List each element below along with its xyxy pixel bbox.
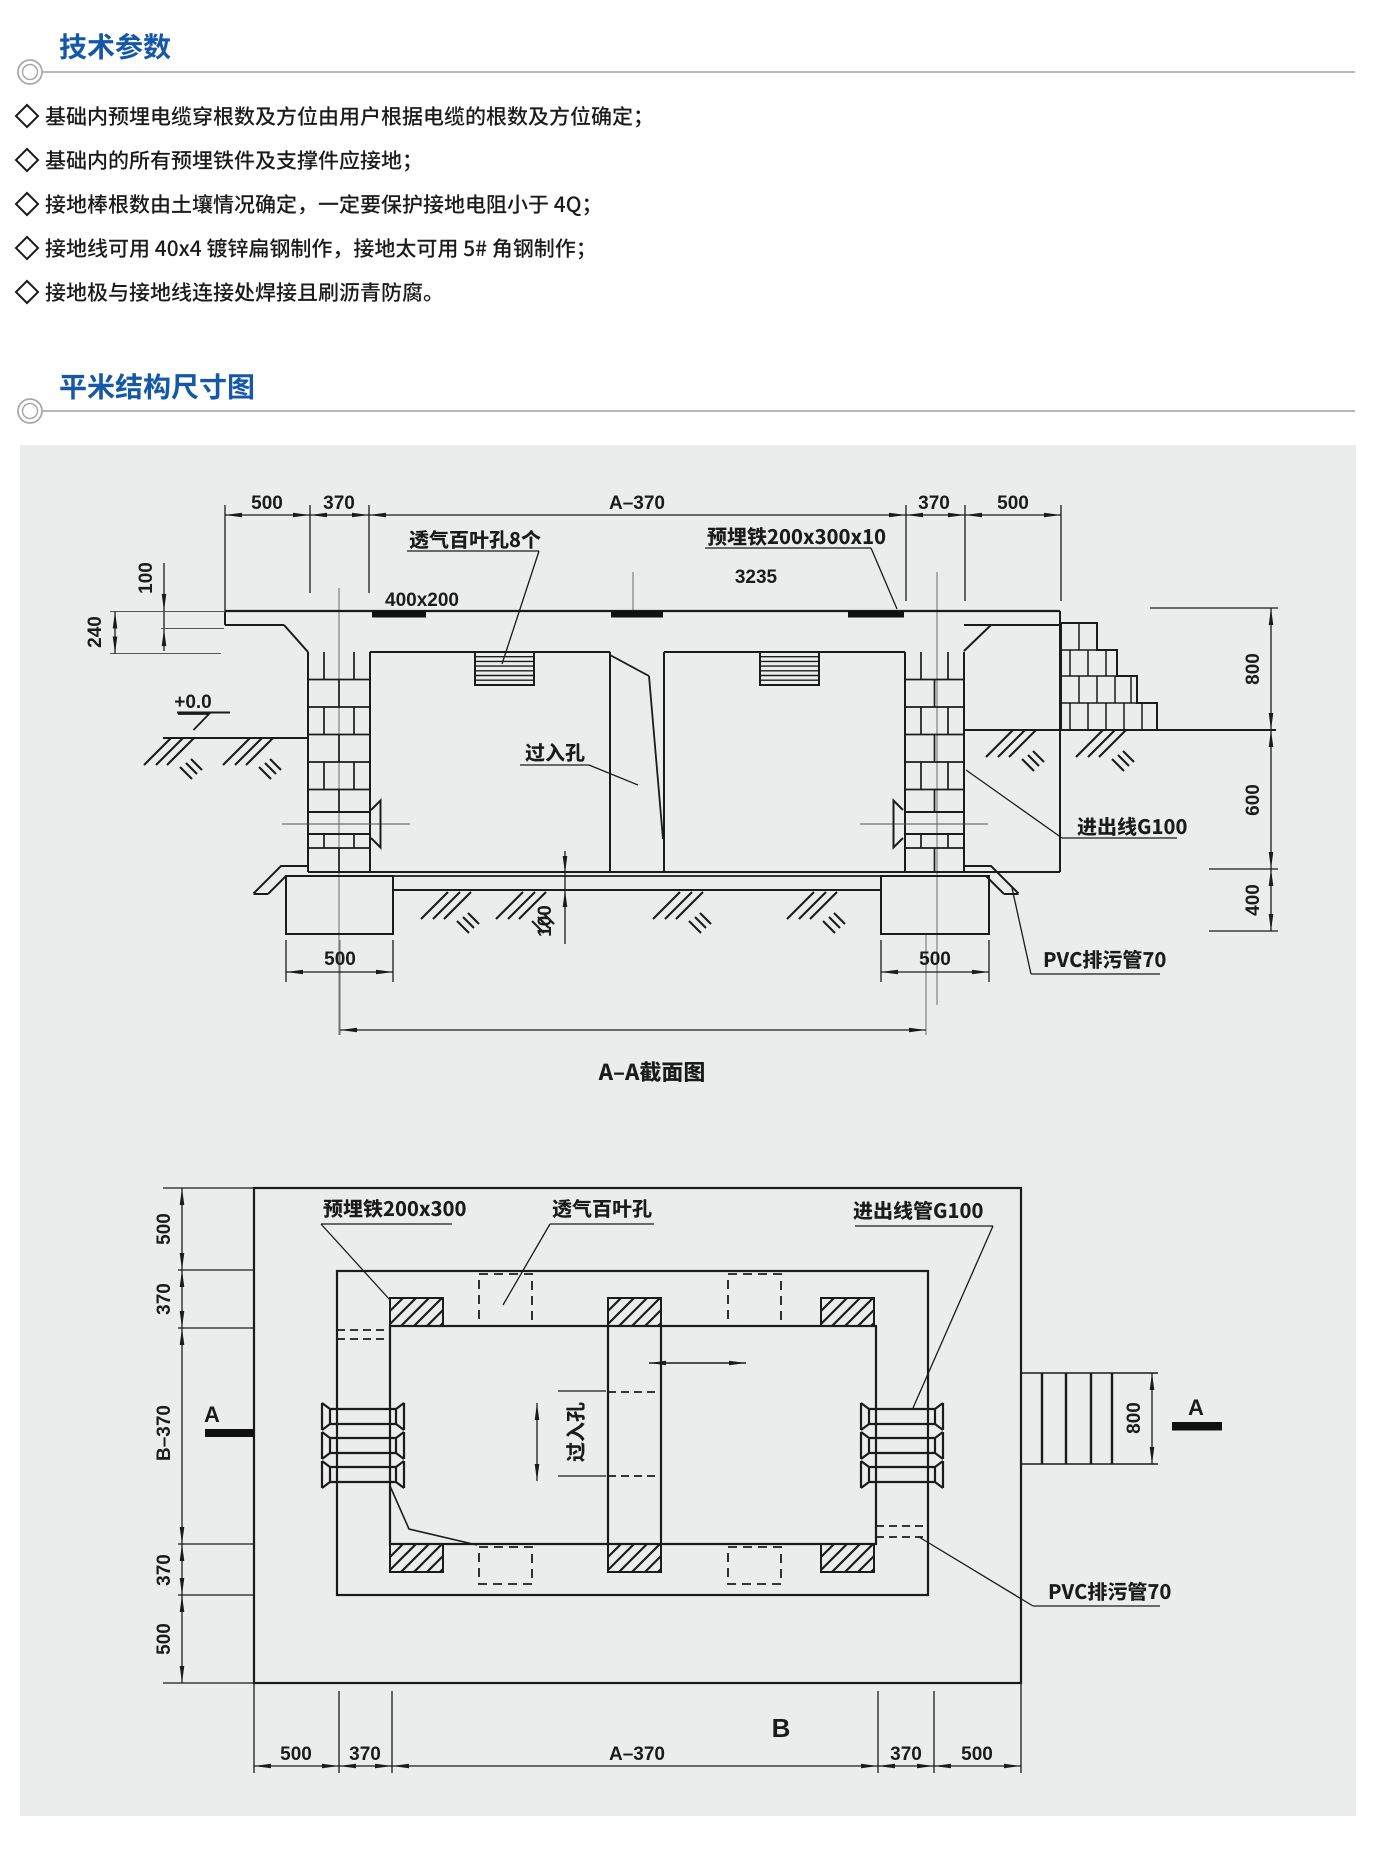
svg-text:500: 500 [251, 493, 283, 514]
svg-text:800: 800 [1124, 1402, 1145, 1434]
svg-text:370: 370 [154, 1283, 175, 1315]
svg-text:A: A [204, 1402, 220, 1427]
svg-text:370: 370 [154, 1554, 175, 1586]
svg-text:B–370: B–370 [154, 1405, 175, 1461]
svg-text:500: 500 [280, 1744, 312, 1765]
svg-text:500: 500 [154, 1213, 175, 1245]
svg-text:800: 800 [1243, 653, 1264, 685]
svg-text:500: 500 [997, 493, 1029, 514]
svg-text:600: 600 [1243, 784, 1264, 816]
svg-text:B: B [772, 1713, 791, 1743]
svg-text:500: 500 [154, 1623, 175, 1655]
svg-text:240: 240 [85, 616, 106, 648]
svg-text:370: 370 [890, 1744, 922, 1765]
svg-text:400: 400 [1243, 884, 1264, 916]
svg-text:500: 500 [324, 949, 356, 970]
svg-text:A–370: A–370 [609, 1744, 665, 1765]
svg-text:400x200: 400x200 [385, 590, 459, 611]
svg-text:100: 100 [535, 905, 556, 937]
svg-text:370: 370 [323, 493, 355, 514]
svg-text:500: 500 [919, 949, 951, 970]
svg-text:370: 370 [918, 493, 950, 514]
svg-text:370: 370 [349, 1744, 381, 1765]
svg-text:500: 500 [961, 1744, 993, 1765]
svg-text:3235: 3235 [735, 567, 778, 588]
svg-text:A–370: A–370 [609, 493, 665, 514]
svg-text:+0.0: +0.0 [174, 692, 212, 713]
svg-text:A: A [1188, 1395, 1204, 1420]
svg-text:100: 100 [136, 562, 157, 594]
